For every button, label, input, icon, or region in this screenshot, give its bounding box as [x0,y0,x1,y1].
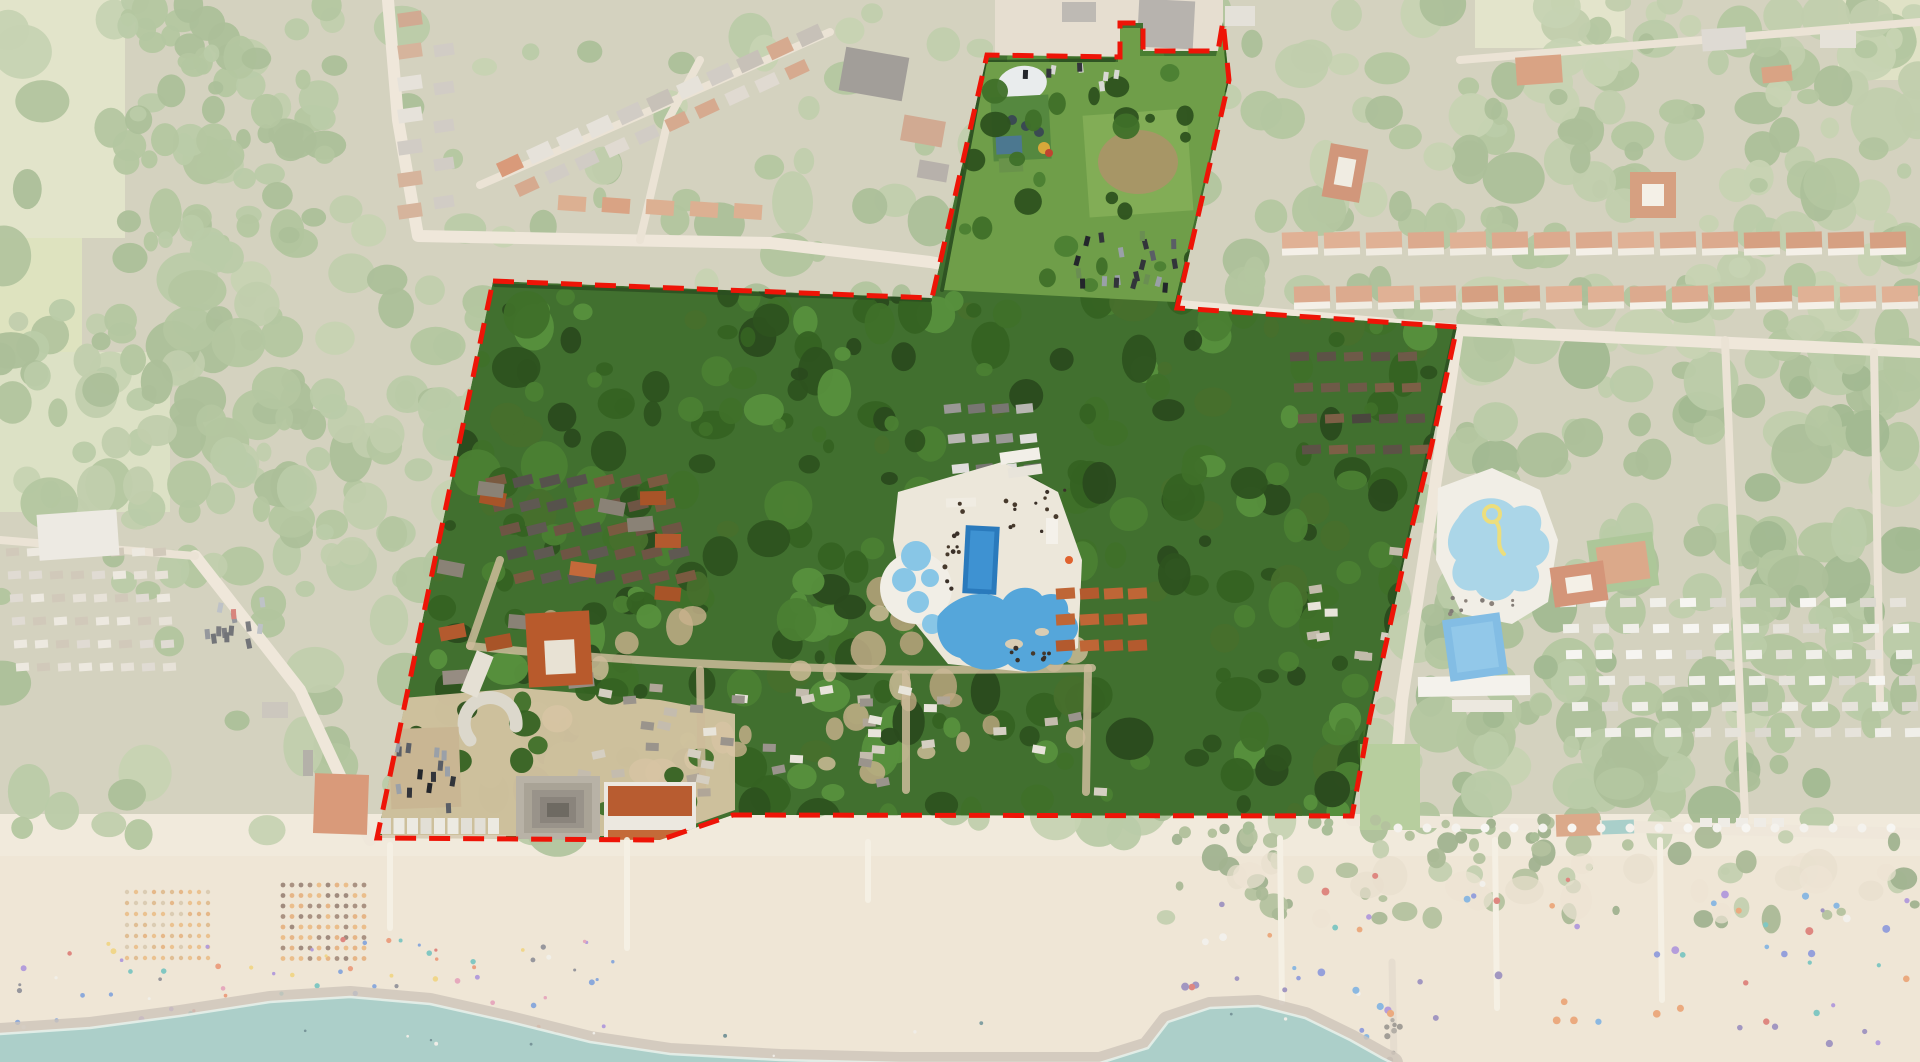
scene-svg [0,0,1920,1062]
aerial-screenshot [0,0,1920,1062]
faded-overlay [0,0,1920,1062]
